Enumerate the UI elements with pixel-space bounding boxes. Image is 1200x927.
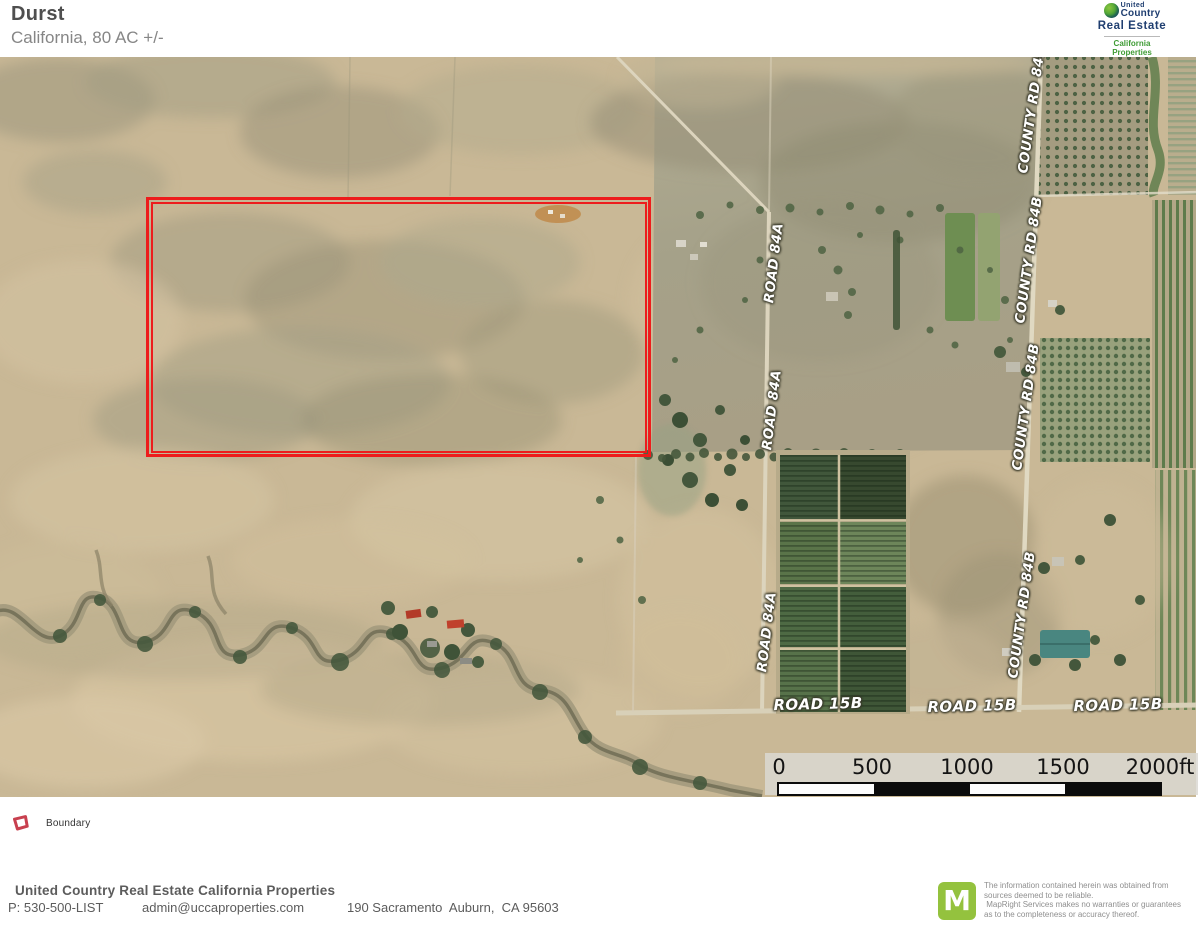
road-label-road-15b: ROAD 15B: [773, 694, 863, 714]
brand-divider: [1104, 36, 1160, 37]
legend-item-boundary: Boundary: [10, 814, 90, 832]
scale-tick: 1000: [940, 755, 993, 779]
brand-real-estate: Real Estate: [1094, 21, 1170, 33]
header: Durst California, 80 AC +/- United Count…: [0, 0, 1200, 57]
road-label-road-15b: ROAD 15B: [927, 696, 1017, 716]
property-boundary-inner-line: [151, 202, 647, 453]
property-boundary: [146, 197, 651, 457]
page-subtitle: California, 80 AC +/-: [11, 28, 164, 48]
brand-wordmark: United Country: [1121, 2, 1161, 19]
scale-tick: 2000ft: [1126, 755, 1195, 779]
scale-segments: [777, 782, 1162, 796]
legend: Boundary: [0, 797, 1200, 857]
brand-logo: United Country Real Estate California Pr…: [1094, 2, 1170, 58]
footer: United Country Real Estate California Pr…: [0, 870, 1200, 927]
scale-segment: [874, 784, 969, 794]
scale-segment: [779, 784, 874, 794]
brand-word-country: Country: [1121, 9, 1161, 19]
street-address: 190 Sacramento Auburn, CA 95603: [347, 900, 559, 915]
scale-segment: [970, 784, 1065, 794]
scale-tick: 0: [772, 755, 785, 779]
disclaimer-text: The information contained herein was obt…: [984, 881, 1198, 919]
company-name: United Country Real Estate California Pr…: [15, 883, 335, 898]
mapright-logo: M: [938, 882, 976, 920]
phone-number: P: 530-500-LIST: [8, 900, 103, 915]
page-title: Durst: [11, 3, 65, 26]
email-address: admin@uccaproperties.com: [142, 900, 304, 915]
globe-icon: [1104, 3, 1119, 18]
legend-label: Boundary: [46, 818, 90, 829]
map-scale-bar: 0 500 1000 1500 2000ft: [765, 753, 1198, 795]
scale-tick: 500: [852, 755, 892, 779]
property-map-flyer: { "header": { "title": "Durst", "subtitl…: [0, 0, 1200, 927]
scale-tick: 1500: [1036, 755, 1089, 779]
road-label-road-15b: ROAD 15B: [1073, 695, 1163, 715]
aerial-map: COUNTY RD 84B COUNTY RD 84B COUNTY RD 84…: [0, 57, 1200, 797]
brand-division: California Properties: [1094, 39, 1170, 58]
scale-segment: [1065, 784, 1160, 794]
boundary-swatch-icon: [10, 814, 32, 832]
